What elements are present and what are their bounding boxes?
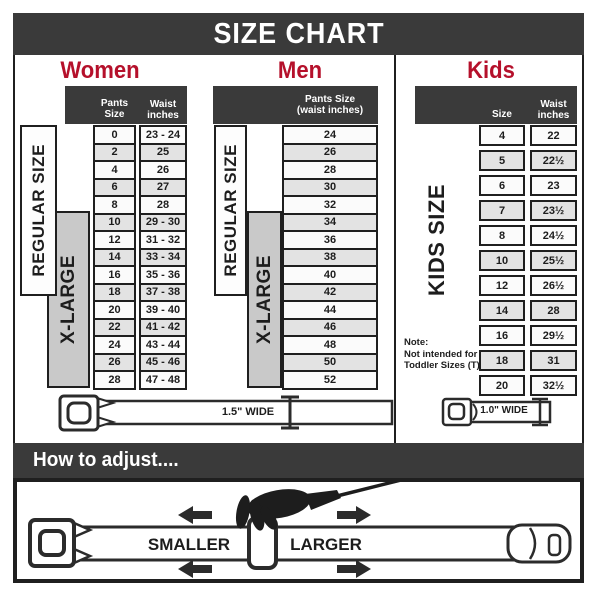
kids-belt-width-label: 1.0" WIDE bbox=[474, 405, 534, 416]
table-row: 18 31 bbox=[479, 350, 577, 371]
waist-cell: 28 bbox=[530, 300, 577, 321]
waist-cell: 47 - 48 bbox=[139, 370, 187, 390]
table-row: 28 47 - 48 bbox=[93, 370, 187, 390]
kids-waist-header: Waist inches bbox=[530, 99, 577, 121]
pants-size-cell: 28 bbox=[93, 370, 136, 390]
tip-slot bbox=[549, 535, 560, 555]
seatbelt-buckle-icon bbox=[30, 520, 74, 566]
adjust-illustration bbox=[17, 482, 580, 579]
waist-cell: 25½ bbox=[530, 250, 577, 271]
kids-table-header: Size Waist inches bbox=[415, 86, 577, 124]
adult-belt-illustration bbox=[13, 390, 395, 443]
toddler-note: Note: Not intended for Toddler Sizes (T) bbox=[404, 337, 480, 372]
arrow-left-icon bbox=[178, 506, 212, 524]
smaller-label: SMALLER bbox=[145, 535, 233, 555]
divider-right bbox=[582, 55, 584, 443]
table-row: 10 25½ bbox=[479, 250, 577, 271]
men-pants-size-header: Pants Size (waist inches) bbox=[282, 94, 378, 116]
page-title: SIZE CHART bbox=[213, 18, 384, 51]
title-bar: SIZE CHART bbox=[13, 13, 584, 55]
divider-left bbox=[13, 55, 15, 443]
arrow-right-icon bbox=[337, 560, 371, 578]
arrow-right-icon bbox=[337, 506, 371, 524]
waist-cell: 29½ bbox=[530, 325, 577, 346]
table-row: 52 bbox=[282, 370, 378, 390]
table-row: 5 22½ bbox=[479, 150, 577, 171]
women-table-header: Pants Size Waist inches bbox=[65, 86, 187, 124]
table-row: 8 24½ bbox=[479, 225, 577, 246]
size-cell: 16 bbox=[479, 325, 525, 346]
men-xlarge-label: X-LARGE bbox=[247, 211, 282, 388]
women-waist-header: Waist inches bbox=[139, 99, 187, 121]
kids-size-label: KIDS SIZE bbox=[420, 140, 454, 340]
men-table-header: Pants Size (waist inches) bbox=[213, 86, 378, 124]
women-pants-size-header: Pants Size bbox=[93, 98, 136, 120]
waist-cell: 26½ bbox=[530, 275, 577, 296]
table-row: 7 23½ bbox=[479, 200, 577, 221]
table-row: 14 28 bbox=[479, 300, 577, 321]
seatbelt-buckle-icon bbox=[60, 396, 98, 430]
table-row: 12 26½ bbox=[479, 275, 577, 296]
waist-cell: 22½ bbox=[530, 150, 577, 171]
women-size-table: 0 23 - 24 2 25 4 26 6 27 8 28 10 29 - 30… bbox=[93, 125, 187, 390]
adjust-illustration-box bbox=[13, 478, 584, 583]
waist-cell: 23½ bbox=[530, 200, 577, 221]
size-cell: 4 bbox=[479, 125, 525, 146]
women-heading: Women bbox=[45, 56, 155, 86]
men-regular-size-label: REGULAR SIZE bbox=[214, 125, 247, 296]
waist-cell: 24½ bbox=[530, 225, 577, 246]
table-row: 4 22 bbox=[479, 125, 577, 146]
kids-heading: Kids bbox=[436, 56, 546, 86]
how-to-adjust-heading: How to adjust.... bbox=[33, 449, 179, 472]
size-cell: 6 bbox=[479, 175, 525, 196]
size-chart-page: { "title": "SIZE CHART", "colors": { "ac… bbox=[0, 0, 600, 600]
adult-belt-width-label: 1.5" WIDE bbox=[213, 406, 283, 418]
larger-label: LARGER bbox=[282, 535, 370, 555]
size-cell: 8 bbox=[479, 225, 525, 246]
pants-size-cell: 52 bbox=[282, 370, 378, 390]
arrow-left-icon bbox=[178, 560, 212, 578]
size-cell: 5 bbox=[479, 150, 525, 171]
table-row: 6 23 bbox=[479, 175, 577, 196]
men-heading: Men bbox=[245, 56, 355, 86]
men-size-table: 24 26 28 30 32 34 36 38 40 42 bbox=[282, 125, 378, 390]
how-to-adjust-bar: How to adjust.... bbox=[13, 443, 584, 478]
divider-middle bbox=[394, 55, 396, 443]
size-cell: 10 bbox=[479, 250, 525, 271]
size-cell: 18 bbox=[479, 350, 525, 371]
waist-cell: 23 bbox=[530, 175, 577, 196]
kids-size-header: Size bbox=[479, 109, 525, 120]
kids-size-table: 4 22 5 22½ 6 23 7 23½ 8 24½ 10 25½ 12 26… bbox=[479, 125, 577, 400]
arm-line bbox=[337, 482, 417, 496]
waist-cell: 31 bbox=[530, 350, 577, 371]
size-cell: 12 bbox=[479, 275, 525, 296]
size-cell: 7 bbox=[479, 200, 525, 221]
size-cell: 14 bbox=[479, 300, 525, 321]
women-regular-size-label: REGULAR SIZE bbox=[20, 125, 57, 296]
waist-cell: 22 bbox=[530, 125, 577, 146]
kids-belt-illustration bbox=[396, 390, 584, 443]
table-row: 16 29½ bbox=[479, 325, 577, 346]
